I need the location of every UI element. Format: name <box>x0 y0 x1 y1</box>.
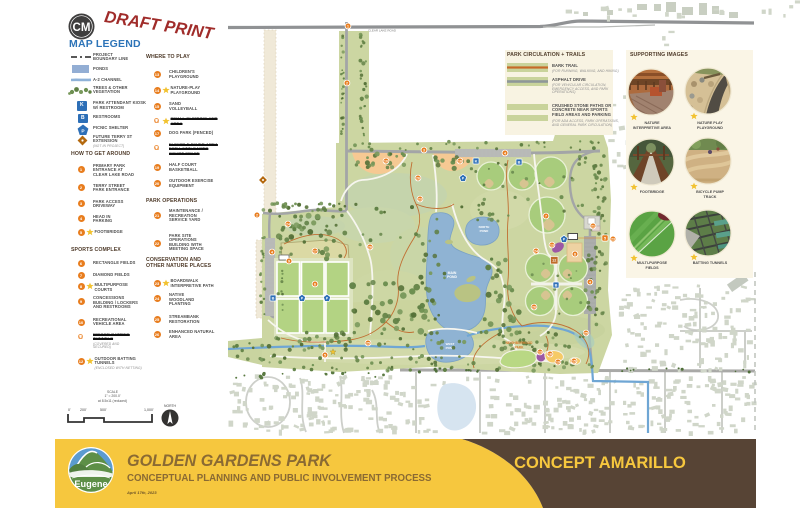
svg-text:21: 21 <box>591 225 595 229</box>
svg-text:26: 26 <box>368 246 372 250</box>
svg-text:PARK: PARK <box>515 346 524 350</box>
svg-text:POND: POND <box>480 229 490 233</box>
svg-text:2: 2 <box>346 82 348 86</box>
svg-text:10: 10 <box>384 160 388 164</box>
svg-text:8: 8 <box>574 253 576 257</box>
svg-text:26: 26 <box>532 306 536 310</box>
svg-text:9: 9 <box>288 260 290 264</box>
svg-text:B: B <box>555 283 558 288</box>
svg-text:CLEAR LAKE ROAD: CLEAR LAKE ROAD <box>368 29 397 33</box>
svg-text:B: B <box>272 296 275 301</box>
svg-text:CONCEPT AMARILLO: CONCEPT AMARILLO <box>514 454 686 472</box>
svg-text:CONCEPTUAL PLANNING AND PUBLIC: CONCEPTUAL PLANNING AND PUBLIC INVOLVEME… <box>127 473 432 484</box>
svg-text:April 17th, 2023: April 17th, 2023 <box>126 490 157 495</box>
svg-text:18: 18 <box>458 160 462 164</box>
svg-text:200': 200' <box>80 408 87 412</box>
svg-text:CM: CM <box>73 22 91 34</box>
svg-text:2: 2 <box>256 214 258 218</box>
svg-text:1,000': 1,000' <box>144 408 154 412</box>
svg-text:4: 4 <box>271 251 273 255</box>
svg-text:13: 13 <box>550 244 554 248</box>
svg-text:12: 12 <box>552 259 556 263</box>
svg-text:15: 15 <box>572 360 576 364</box>
svg-text:5: 5 <box>604 236 606 240</box>
svg-text:Eugene: Eugene <box>74 479 107 489</box>
svg-text:17: 17 <box>313 250 317 254</box>
svg-text:25: 25 <box>584 332 588 336</box>
svg-text:3: 3 <box>423 149 425 153</box>
svg-text:4: 4 <box>504 152 506 156</box>
svg-text:POND: POND <box>447 275 457 279</box>
svg-text:13: 13 <box>538 351 542 355</box>
svg-text:4: 4 <box>589 281 591 285</box>
svg-text:23: 23 <box>611 238 615 242</box>
svg-text:0': 0' <box>68 408 71 412</box>
svg-text:K: K <box>475 159 478 164</box>
svg-text:19: 19 <box>556 361 560 365</box>
svg-text:24: 24 <box>286 223 290 227</box>
svg-text:NEIGHBORHOOD: NEIGHBORHOOD <box>506 341 533 345</box>
svg-text:16: 16 <box>548 353 552 357</box>
svg-text:GOLDEN GARDENS PARK: GOLDEN GARDENS PARK <box>127 452 332 470</box>
svg-text:5: 5 <box>324 354 326 358</box>
svg-text:26: 26 <box>416 177 420 181</box>
svg-text:24: 24 <box>534 250 538 254</box>
svg-text:25: 25 <box>366 342 370 346</box>
svg-text:NORTH: NORTH <box>164 404 177 408</box>
svg-text:23: 23 <box>418 198 422 202</box>
svg-text:6: 6 <box>314 283 316 287</box>
svg-text:500': 500' <box>100 408 107 412</box>
svg-text:1: 1 <box>347 25 349 29</box>
svg-text:B: B <box>518 160 521 165</box>
svg-text:7: 7 <box>545 215 547 219</box>
